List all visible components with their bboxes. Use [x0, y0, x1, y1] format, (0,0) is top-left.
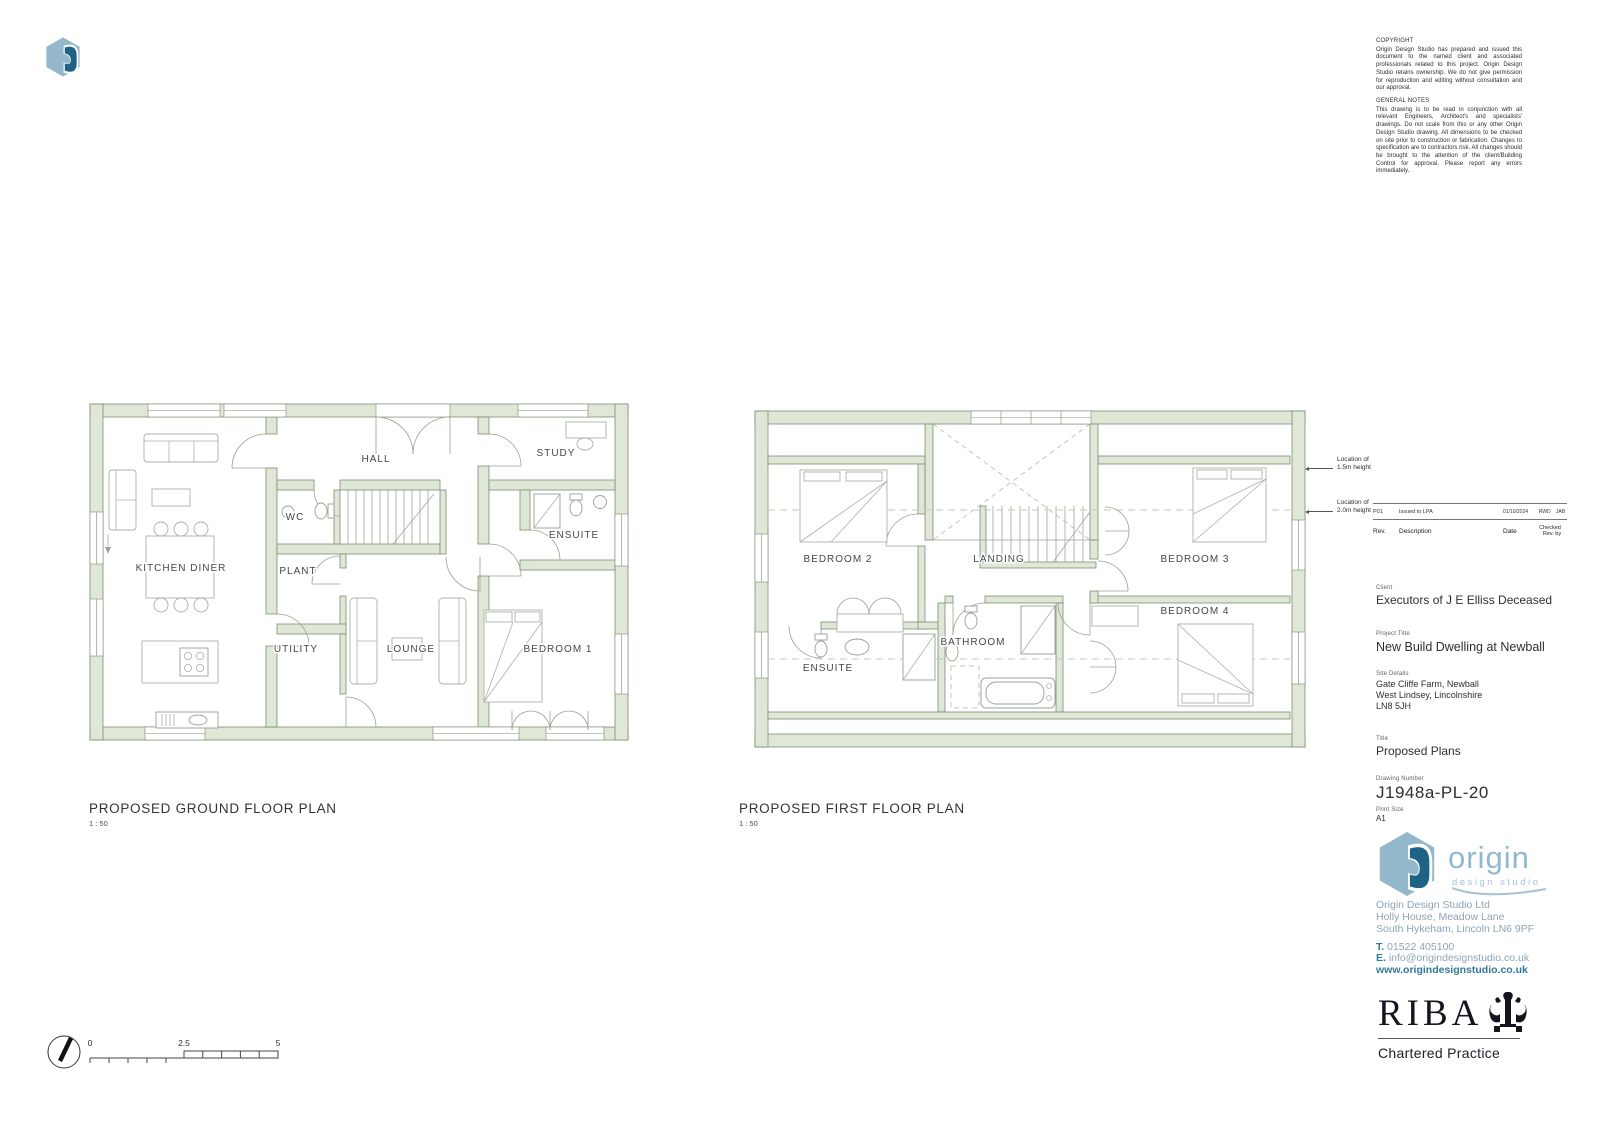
print-size-label: Print Size: [1376, 807, 1404, 813]
copyright-heading: COPYRIGHT: [1376, 38, 1522, 46]
origin-logo-icon: [44, 36, 82, 78]
revision-header-row: Rev. Description Date Checked Rev. by: [1373, 520, 1567, 542]
ground-floor-plan: KITCHEN DINER HALL WC PLANT UTILITY LOUN…: [88, 394, 633, 754]
general-notes-body: This drawing is to be read in conjunctio…: [1376, 107, 1522, 176]
scale-label-mid: 2.5: [178, 1038, 190, 1048]
website-link[interactable]: www.origindesignstudio.co.uk: [1376, 964, 1528, 976]
client-label: Client: [1376, 585, 1393, 591]
riba-tagline: Chartered Practice: [1378, 1045, 1500, 1061]
first-floor-furniture: [800, 468, 1266, 708]
company-address-2: South Hykeham, Lincoln LN6 9PF: [1376, 924, 1534, 936]
origin-wordmark: origin: [1448, 840, 1530, 876]
copyright-notes: COPYRIGHT Origin Design Studio has prepa…: [1376, 38, 1522, 93]
scale-label-max: 5: [276, 1038, 281, 1048]
annotation-2-0m-height: Location of 2.0m height: [1337, 499, 1371, 515]
room-label-ensuite-ff: ENSUITE: [803, 663, 853, 674]
first-floor-void: [933, 424, 1090, 540]
room-label-bedroom1: BEDROOM 1: [523, 644, 592, 655]
ground-floor-plan-scale: 1 : 50: [89, 819, 108, 828]
title-label: Title: [1376, 736, 1388, 742]
room-label-hall: HALL: [361, 454, 390, 465]
room-label-utility: UTILITY: [274, 644, 318, 655]
company-address-1: Holly House, Meadow Lane: [1376, 912, 1504, 924]
scale-bar: 0 2.5 5: [45, 1030, 295, 1076]
room-label-plant: PLANT: [279, 566, 316, 577]
print-size-value: A1: [1376, 814, 1386, 823]
room-label-bathroom: BATHROOM: [940, 637, 1005, 648]
general-notes: GENERAL NOTES This drawing is to be read…: [1376, 98, 1522, 176]
room-label-bedroom2: BEDROOM 2: [803, 554, 872, 565]
riba-crest-icon: [1488, 992, 1528, 1034]
room-label-study: STUDY: [537, 448, 576, 459]
company-name: Origin Design Studio Ltd: [1376, 900, 1490, 912]
first-floor-plan-scale: 1 : 50: [739, 819, 758, 828]
project-title-value: New Build Dwelling at Newball: [1376, 640, 1545, 654]
origin-swoosh-icon: [1450, 886, 1550, 898]
title-value: Proposed Plans: [1376, 744, 1461, 758]
room-label-wc: WC: [286, 512, 305, 523]
origin-logo-large-icon: [1375, 830, 1439, 898]
annotation-1-5m-height: Location of 1.5m height: [1337, 456, 1371, 472]
email-address[interactable]: info@origindesignstudio.co.uk: [1386, 952, 1529, 964]
drawing-number-value: J1948a-PL-20: [1376, 783, 1489, 803]
drawing-number-label: Drawing Number: [1376, 776, 1424, 782]
room-label-landing: LANDING: [973, 554, 1024, 565]
ground-floor-plan-title: PROPOSED GROUND FLOOR PLAN: [89, 801, 337, 816]
scale-label-zero: 0: [88, 1038, 93, 1048]
client-value: Executors of J E Elliss Deceased: [1376, 593, 1552, 607]
riba-divider: [1378, 1038, 1520, 1039]
first-floor-plan-title: PROPOSED FIRST FLOOR PLAN: [739, 801, 965, 816]
site-details-line3: LN8 5JH: [1376, 701, 1411, 711]
ground-floor-furniture: [105, 422, 607, 730]
general-notes-heading: GENERAL NOTES: [1376, 98, 1522, 106]
email-label: E.: [1376, 952, 1386, 964]
ground-floor-stairs: [348, 490, 434, 544]
project-title-label: Project Title: [1376, 631, 1410, 637]
site-details-line1: Gate Cliffe Farm, Newball: [1376, 679, 1479, 689]
copyright-body: Origin Design Studio has prepared and is…: [1376, 47, 1522, 93]
room-label-ensuite-gf: ENSUITE: [549, 530, 599, 541]
leader-line-1-5m: [1307, 468, 1333, 469]
site-details-line2: West Lindsey, Lincolnshire: [1376, 690, 1482, 700]
revision-table: P01 Issued to LPA 01/10/2024 RWD JAB Rev…: [1373, 503, 1567, 542]
room-label-bedroom4: BEDROOM 4: [1160, 606, 1229, 617]
leader-line-2-0m: [1307, 511, 1333, 512]
email-line: E. info@origindesignstudio.co.uk: [1376, 953, 1529, 964]
room-label-kitchen-diner: KITCHEN DINER: [136, 563, 227, 574]
first-floor-plan: BEDROOM 2 LANDING BEDROOM 3 BEDROOM 4 EN…: [753, 394, 1309, 756]
room-label-lounge: LOUNGE: [387, 644, 435, 655]
riba-wordmark: RIBA: [1378, 992, 1482, 1035]
room-label-bedroom3: BEDROOM 3: [1160, 554, 1229, 565]
site-details-label: Site Details: [1376, 671, 1409, 677]
drawing-sheet: KITCHEN DINER HALL WC PLANT UTILITY LOUN…: [0, 0, 1600, 1130]
revision-row: P01 Issued to LPA 01/10/2024 RWD JAB: [1373, 504, 1567, 519]
